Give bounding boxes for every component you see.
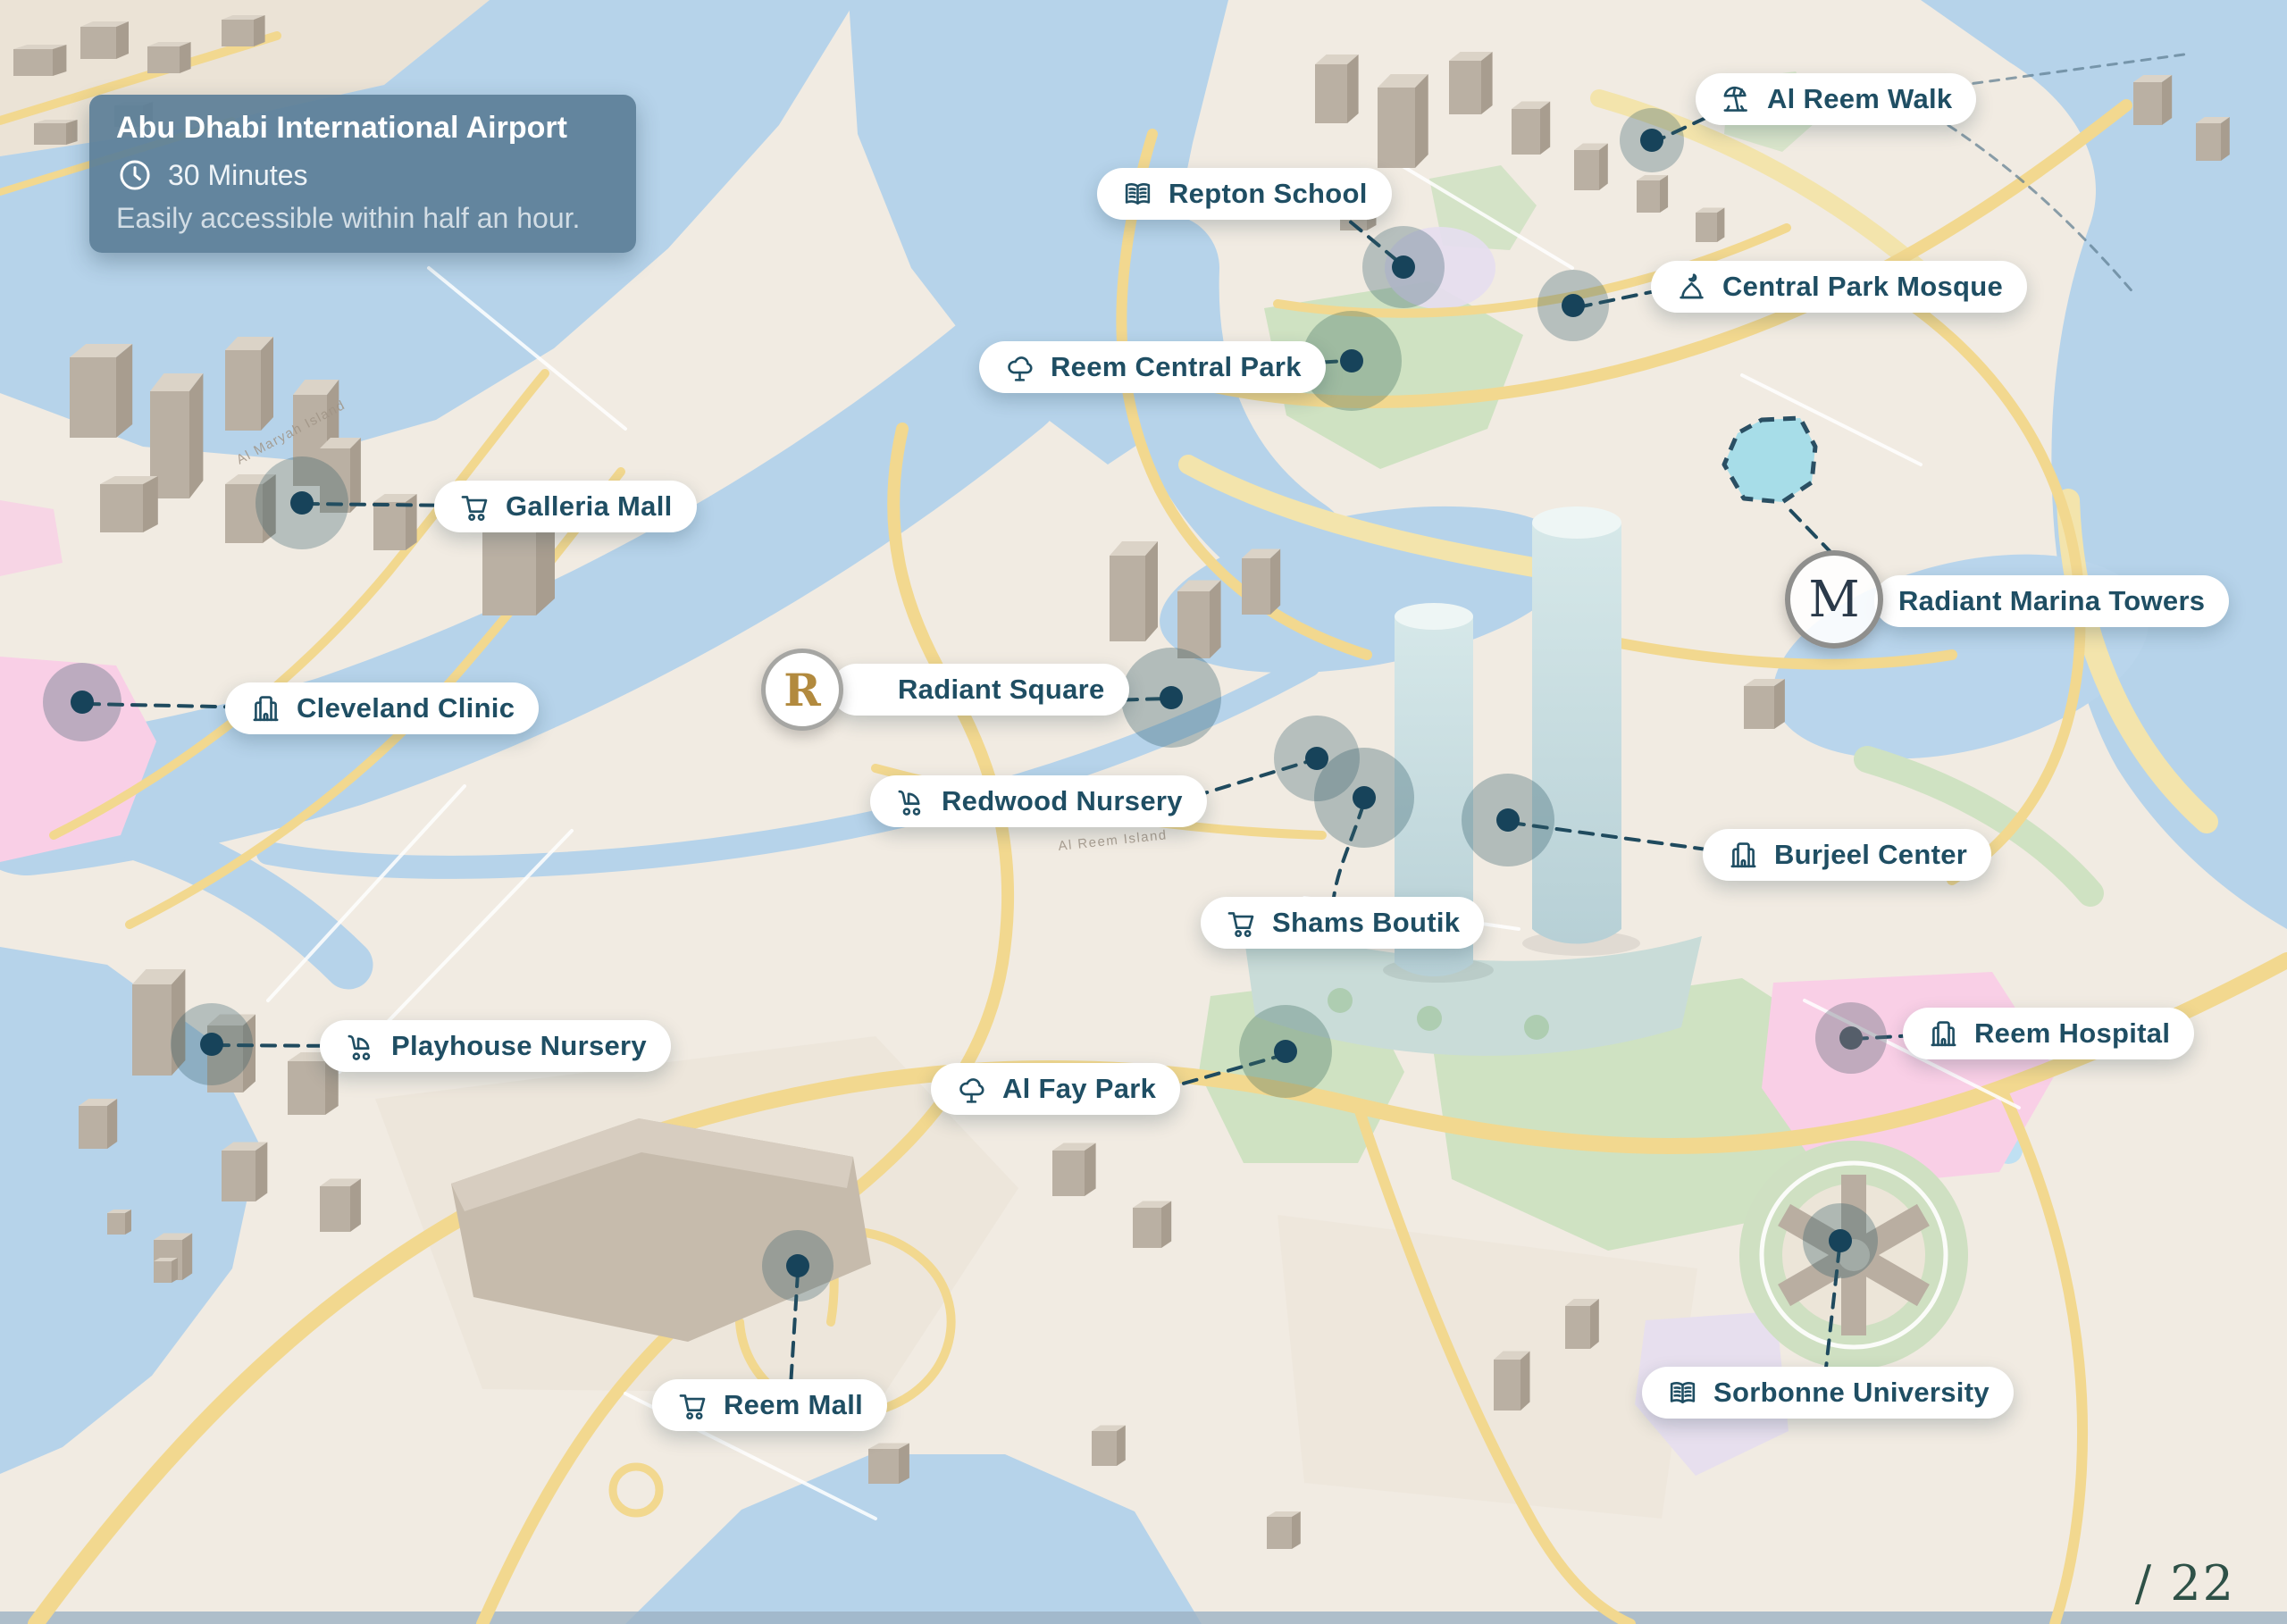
location-label: Repton School (1169, 178, 1368, 210)
location-label: Playhouse Nursery (391, 1030, 647, 1062)
building-icon (249, 692, 282, 725)
shopping-cart-icon (1225, 907, 1258, 940)
location-label: Redwood Nursery (942, 785, 1183, 817)
location-pill-radiant-marina-towers[interactable]: Radiant Marina Towers (1874, 575, 2229, 627)
stroller-icon (344, 1030, 377, 1063)
clock-icon (116, 156, 154, 194)
location-pill-burjeel-center[interactable]: Burjeel Center (1703, 829, 1991, 881)
location-pill-reem-mall[interactable]: Reem Mall (652, 1379, 887, 1431)
beach-umbrella-icon (1720, 83, 1753, 116)
map-pin-al-fay-park[interactable] (1239, 1005, 1332, 1098)
location-label: Central Park Mosque (1722, 271, 2003, 303)
location-pill-shams-boutik[interactable]: Shams Boutik (1201, 897, 1484, 949)
radiant-marina-logo-badge[interactable]: M (1785, 550, 1883, 649)
location-label: Radiant Marina Towers (1898, 585, 2205, 617)
map-pin-central-park-mosque[interactable] (1537, 270, 1609, 341)
location-pill-central-park-mosque[interactable]: Central Park Mosque (1651, 261, 2027, 313)
brochure-map-page: Al Maryah Island Al Reem Island (0, 0, 2287, 1624)
mosque-icon (1675, 271, 1708, 304)
location-label: Cleveland Clinic (297, 692, 515, 724)
location-pill-al-reem-walk[interactable]: Al Reem Walk (1696, 73, 1976, 125)
location-pill-reem-hospital[interactable]: Reem Hospital (1903, 1008, 2194, 1059)
airport-card-note: Easily accessible within half an hour. (116, 202, 609, 235)
shopping-cart-icon (676, 1389, 709, 1422)
location-pill-playhouse-nursery[interactable]: Playhouse Nursery (320, 1020, 671, 1072)
map-pin-cleveland-clinic[interactable] (43, 663, 121, 741)
radiant-marina-monogram: M (1808, 571, 1859, 629)
map-pin-galleria-mall[interactable] (256, 456, 348, 549)
page-number: / 22 (2135, 1555, 2235, 1611)
location-label: Radiant Square (898, 674, 1105, 706)
building-icon (1927, 1017, 1960, 1051)
tree-icon (955, 1073, 988, 1106)
airport-card-title: Abu Dhabi International Airport (116, 111, 609, 146)
open-book-icon (1666, 1377, 1699, 1410)
map-pin-reem-mall[interactable] (762, 1230, 834, 1302)
location-label: Reem Mall (724, 1389, 863, 1421)
map-pin-shams-boutik[interactable] (1314, 748, 1414, 848)
location-label: Shams Boutik (1272, 907, 1460, 939)
location-pill-reem-central-park[interactable]: Reem Central Park (979, 341, 1326, 393)
location-label: Al Fay Park (1002, 1073, 1156, 1105)
open-book-icon (1121, 178, 1154, 211)
map-pin-playhouse-nursery[interactable] (171, 1003, 253, 1085)
location-pill-cleveland-clinic[interactable]: Cleveland Clinic (225, 682, 539, 734)
airport-travel-time: 30 Minutes (168, 159, 308, 192)
tree-icon (1003, 351, 1036, 384)
location-label: Reem Hospital (1974, 1017, 2170, 1050)
map-pin-repton-school[interactable] (1362, 226, 1445, 308)
building-icon (1727, 839, 1760, 872)
map-pin-reem-hospital[interactable] (1815, 1002, 1887, 1074)
map-pin-burjeel-center[interactable] (1462, 774, 1554, 866)
airport-info-card: Abu Dhabi International Airport 30 Minut… (89, 95, 636, 253)
radiant-square-monogram: R (783, 664, 821, 716)
location-label: Reem Central Park (1051, 351, 1302, 383)
location-pill-redwood-nursery[interactable]: Redwood Nursery (870, 775, 1207, 827)
location-label: Sorbonne University (1713, 1377, 1990, 1409)
shopping-cart-icon (458, 490, 491, 523)
stroller-icon (894, 785, 927, 818)
location-pill-repton-school[interactable]: Repton School (1097, 168, 1392, 220)
location-label: Burjeel Center (1774, 839, 1967, 871)
location-pill-sorbonne-university[interactable]: Sorbonne University (1642, 1367, 2014, 1419)
location-pill-galleria-mall[interactable]: Galleria Mall (434, 481, 697, 532)
location-pill-al-fay-park[interactable]: Al Fay Park (931, 1063, 1180, 1115)
radiant-square-logo-badge[interactable]: R (761, 649, 843, 731)
map-pin-radiant-square[interactable] (1121, 648, 1221, 748)
map-pin-sorbonne-university[interactable] (1803, 1203, 1878, 1278)
map-pin-al-reem-walk[interactable] (1620, 108, 1684, 172)
location-label: Galleria Mall (506, 490, 673, 523)
location-pill-radiant-square[interactable]: Radiant Square (831, 664, 1129, 716)
location-label: Al Reem Walk (1767, 83, 1952, 115)
